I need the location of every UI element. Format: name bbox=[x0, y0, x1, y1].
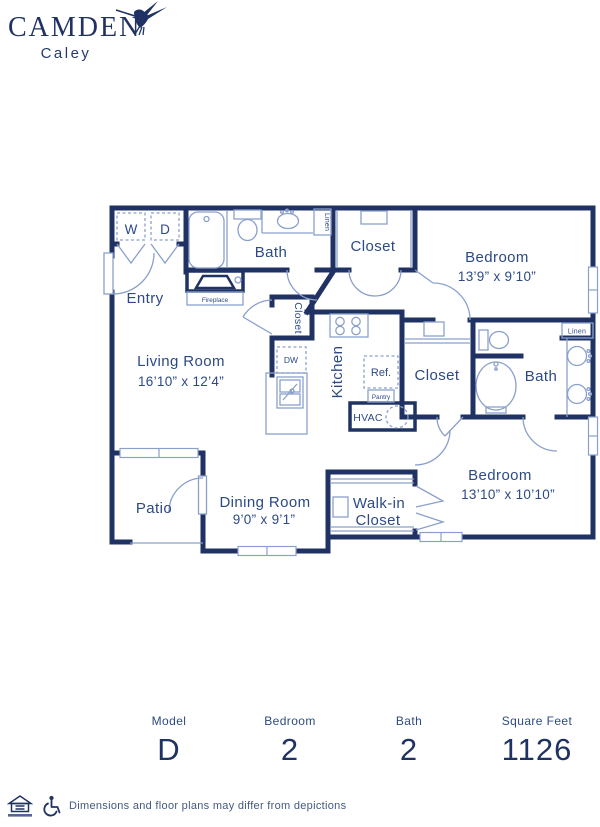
stove-icon bbox=[330, 314, 368, 337]
living-room-label: Living Room bbox=[137, 353, 225, 370]
fireplace-label: Fireplace bbox=[202, 297, 229, 304]
window-icon bbox=[589, 267, 598, 313]
stat-model-label: Model bbox=[152, 714, 187, 728]
window-icon bbox=[589, 417, 598, 455]
bath1-label: Bath bbox=[255, 244, 287, 261]
closet-top-label: Closet bbox=[351, 238, 396, 255]
garden-tub-icon bbox=[476, 362, 516, 413]
dining-room-label: Dining Room bbox=[219, 494, 310, 511]
hvac-label: HVAC bbox=[353, 412, 383, 424]
disclaimer-text: Dimensions and floor plans may differ fr… bbox=[69, 800, 346, 812]
entry-door-icon bbox=[104, 253, 154, 294]
hall-closet-label: Closet bbox=[292, 302, 304, 334]
stat-model-value: D bbox=[152, 732, 187, 768]
window-icon bbox=[238, 547, 296, 556]
pantry-label: Pantry bbox=[372, 394, 391, 401]
equal-housing-icon bbox=[7, 794, 33, 818]
window-icon bbox=[120, 449, 198, 458]
refrigerator-label: Ref. bbox=[371, 367, 391, 379]
dishwasher-label: DW bbox=[284, 355, 298, 365]
kitchen-sink-icon bbox=[266, 373, 307, 434]
footer-disclaimer: Dimensions and floor plans may differ fr… bbox=[7, 794, 346, 818]
walkin-label-line2: Closet bbox=[356, 512, 401, 529]
closet2-label: Closet bbox=[415, 367, 460, 384]
bathtub-icon bbox=[189, 211, 227, 268]
toilet-icon bbox=[234, 210, 261, 241]
stat-bath: Bath 2 bbox=[396, 714, 422, 768]
stat-bedroom-value: 2 bbox=[264, 732, 316, 768]
floorplan-page: { "brand": { "name": "CAMDEN", "communit… bbox=[0, 0, 600, 827]
floorplan-drawing: W D Entry Bath Linen Fireplace Closet Be… bbox=[0, 0, 600, 827]
stat-bath-label: Bath bbox=[396, 714, 422, 728]
patio-label: Patio bbox=[136, 500, 172, 517]
bedroom2-label: Bedroom bbox=[468, 467, 532, 484]
living-room-dims: 16’10” x 12’4” bbox=[138, 374, 224, 389]
stat-sqft-value: 1126 bbox=[502, 732, 573, 768]
bedroom1-label: Bedroom bbox=[465, 249, 529, 266]
washer-dryer-icon bbox=[117, 213, 179, 263]
linen2-label: Linen bbox=[568, 329, 586, 336]
stat-model: Model D bbox=[152, 714, 187, 768]
bedroom2-dims: 13’10” x 10’10” bbox=[461, 487, 555, 502]
stat-sqft-label: Square Feet bbox=[502, 714, 573, 728]
stat-bedroom: Bedroom 2 bbox=[264, 714, 316, 768]
hall-closet-door bbox=[243, 300, 272, 334]
stat-bedroom-label: Bedroom bbox=[264, 714, 316, 728]
bedroom1-dims: 13’9” x 9’10” bbox=[458, 269, 536, 284]
walkin-label-line1: Walk-in bbox=[353, 495, 405, 512]
double-vanity-icon bbox=[567, 338, 591, 417]
sink-icon bbox=[262, 209, 313, 233]
washer-label: W bbox=[125, 222, 138, 237]
toilet2-icon bbox=[479, 330, 509, 350]
kitchen-label: Kitchen bbox=[329, 346, 346, 399]
bath2-label: Bath bbox=[525, 368, 557, 385]
bath2-door-arc bbox=[523, 417, 557, 451]
window-icon bbox=[420, 533, 462, 542]
dryer-label: D bbox=[160, 222, 170, 237]
accessibility-icon bbox=[40, 795, 62, 817]
entry-label: Entry bbox=[126, 290, 163, 307]
stat-bath-value: 2 bbox=[396, 732, 422, 768]
dining-room-dims: 9’0” x 9’1” bbox=[233, 512, 296, 527]
stat-sqft: Square Feet 1126 bbox=[502, 714, 573, 768]
linen1-label: Linen bbox=[323, 213, 330, 231]
room-labels: W D Entry Bath Linen Fireplace Closet Be… bbox=[125, 213, 586, 529]
